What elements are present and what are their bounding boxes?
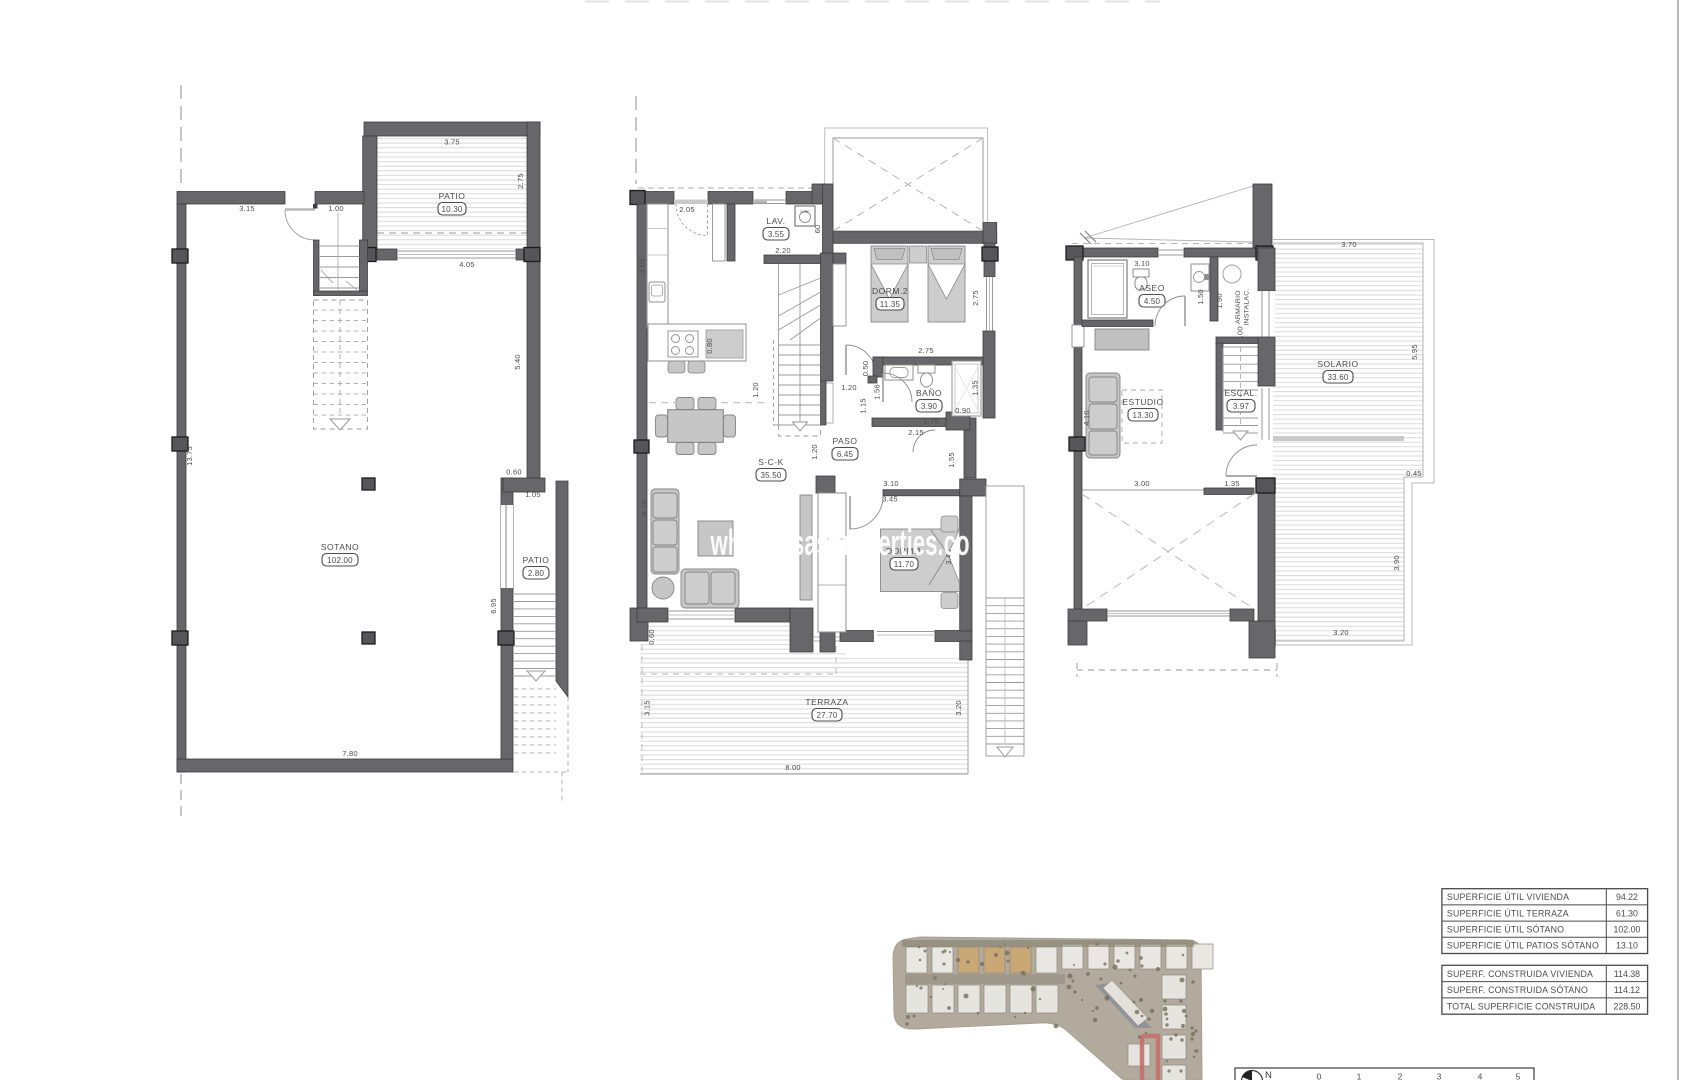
svg-text:1.15: 1.15: [859, 398, 868, 413]
svg-text:7.80: 7.80: [342, 749, 357, 758]
svg-text:4.10: 4.10: [1082, 410, 1091, 425]
svg-text:ASEO: ASEO: [1139, 283, 1165, 293]
svg-text:60: 60: [813, 225, 822, 234]
svg-text:35.50: 35.50: [760, 471, 781, 480]
svg-text:2.75: 2.75: [971, 290, 980, 305]
svg-text:2.20: 2.20: [775, 246, 790, 255]
svg-text:2: 2: [1398, 1072, 1403, 1080]
svg-text:6.15: 6.15: [640, 500, 649, 515]
svg-text:ARMARIO: ARMARIO: [1235, 290, 1242, 324]
svg-text:3.20: 3.20: [1333, 628, 1348, 637]
svg-text:2.80: 2.80: [528, 569, 545, 578]
svg-text:102.00: 102.00: [1613, 925, 1640, 935]
svg-text:13.10: 13.10: [1616, 941, 1638, 951]
svg-text:4.05: 4.05: [459, 260, 474, 269]
svg-text:DORM.2: DORM.2: [872, 286, 908, 296]
svg-text:3.15: 3.15: [643, 700, 652, 715]
svg-text:2.05: 2.05: [679, 205, 694, 214]
svg-text:114.12: 114.12: [1614, 985, 1640, 995]
svg-text:SUPERFICIE ÚTIL VIVIENDA: SUPERFICIE ÚTIL VIVIENDA: [1447, 892, 1569, 902]
svg-text:1.20: 1.20: [810, 444, 819, 459]
svg-text:whitecasasproperties.co: whitecasasproperties.co: [710, 522, 970, 563]
svg-text:0.80: 0.80: [705, 338, 714, 353]
svg-text:1.00: 1.00: [328, 204, 343, 213]
svg-text:PATIO: PATIO: [439, 191, 466, 201]
svg-text:3.45: 3.45: [882, 495, 897, 504]
svg-text:4: 4: [1478, 1072, 1483, 1080]
svg-text:TERRAZA: TERRAZA: [805, 697, 848, 707]
svg-text:LAV.: LAV.: [800, 209, 809, 214]
svg-text:SOTANO: SOTANO: [321, 542, 359, 552]
svg-text:0: 0: [1317, 1072, 1322, 1080]
svg-text:3.05: 3.05: [638, 258, 647, 273]
svg-text:N: N: [1265, 1070, 1272, 1080]
svg-text:ESCAL.: ESCAL.: [1224, 388, 1257, 398]
svg-text:0.90: 0.90: [955, 406, 970, 415]
svg-text:1.35: 1.35: [1224, 479, 1239, 488]
svg-text:SUPERF. CONSTRUIDA SÓTANO: SUPERF. CONSTRUIDA SÓTANO: [1447, 985, 1588, 995]
svg-text:0.50: 0.50: [861, 361, 870, 376]
svg-text:228.50: 228.50: [1613, 1001, 1640, 1011]
svg-text:0.45: 0.45: [1406, 469, 1421, 478]
svg-text:3.75: 3.75: [444, 138, 459, 147]
svg-text:94.22: 94.22: [1616, 892, 1638, 902]
svg-text:1.05: 1.05: [525, 490, 540, 499]
svg-text:2.75: 2.75: [918, 346, 933, 355]
svg-text:1.35: 1.35: [971, 380, 980, 395]
svg-text:3.90: 3.90: [1392, 555, 1401, 570]
svg-text:10.30: 10.30: [441, 205, 462, 214]
svg-text:2.75: 2.75: [516, 173, 525, 188]
svg-text:5.95: 5.95: [1410, 344, 1419, 359]
svg-text:3.97: 3.97: [1233, 402, 1250, 411]
svg-text:27.70: 27.70: [816, 711, 837, 720]
svg-text:3.70: 3.70: [1341, 240, 1356, 249]
svg-text:3.00: 3.00: [1134, 479, 1149, 488]
svg-text:102.00: 102.00: [327, 556, 353, 565]
svg-text:SOLARIO: SOLARIO: [1317, 359, 1358, 369]
svg-text:1.20: 1.20: [841, 383, 856, 392]
svg-text:3.10: 3.10: [883, 479, 898, 488]
svg-text:61.30: 61.30: [1616, 908, 1638, 918]
svg-text:5.40: 5.40: [513, 354, 522, 369]
svg-text:SUPERFICIE ÚTIL PATIOS SÓTANO: SUPERFICIE ÚTIL PATIOS SÓTANO: [1447, 941, 1599, 951]
svg-text:0.60: 0.60: [506, 468, 521, 477]
svg-text:13.30: 13.30: [1132, 411, 1153, 420]
svg-text:13.75: 13.75: [185, 446, 194, 466]
svg-text:6.95: 6.95: [489, 598, 498, 613]
svg-text:1.50: 1.50: [1196, 289, 1205, 304]
svg-text:3.10: 3.10: [1134, 259, 1149, 268]
svg-text:3.90: 3.90: [921, 402, 938, 411]
svg-text:114.38: 114.38: [1614, 969, 1640, 979]
svg-text:3: 3: [1437, 1072, 1442, 1080]
svg-text:5: 5: [1516, 1072, 1521, 1080]
svg-text:1.90: 1.90: [1215, 293, 1224, 308]
svg-text:3.15: 3.15: [239, 204, 254, 213]
svg-text:33.60: 33.60: [1327, 373, 1348, 382]
svg-text:6.45: 6.45: [837, 450, 854, 459]
svg-text:2.15: 2.15: [908, 428, 923, 437]
svg-text:11.35: 11.35: [880, 300, 901, 309]
svg-text:LAV.: LAV.: [766, 216, 785, 226]
svg-text:PASO: PASO: [833, 436, 858, 446]
svg-text:1.75: 1.75: [923, 417, 938, 426]
svg-text:TOTAL SUPERFICIE CONSTRUIDA: TOTAL SUPERFICIE CONSTRUIDA: [1447, 1001, 1595, 1011]
svg-text:1.55: 1.55: [947, 452, 956, 467]
svg-text:4.50: 4.50: [1144, 297, 1161, 306]
svg-text:INSTALAC.: INSTALAC.: [1244, 288, 1251, 325]
svg-text:3.55: 3.55: [768, 230, 785, 239]
svg-text:1.20: 1.20: [751, 382, 760, 397]
svg-text:1.56: 1.56: [873, 384, 882, 399]
svg-text:S-C-K: S-C-K: [758, 457, 784, 467]
svg-text:BAÑO: BAÑO: [916, 388, 942, 398]
svg-text:PATIO: PATIO: [523, 555, 550, 565]
svg-text:ESTUDIO: ESTUDIO: [1122, 397, 1163, 407]
svg-text:SUPERF. CONSTRUIDA VIVIENDA: SUPERF. CONSTRUIDA VIVIENDA: [1447, 969, 1593, 979]
svg-text:1: 1: [1357, 1072, 1362, 1080]
svg-text:SUPERFICIE ÚTIL TERRAZA: SUPERFICIE ÚTIL TERRAZA: [1447, 908, 1569, 918]
svg-text:3.20: 3.20: [954, 700, 963, 715]
svg-text:SUPERFICIE ÚTIL SÓTANO: SUPERFICIE ÚTIL SÓTANO: [1447, 925, 1564, 935]
svg-text:8.00: 8.00: [785, 763, 800, 772]
